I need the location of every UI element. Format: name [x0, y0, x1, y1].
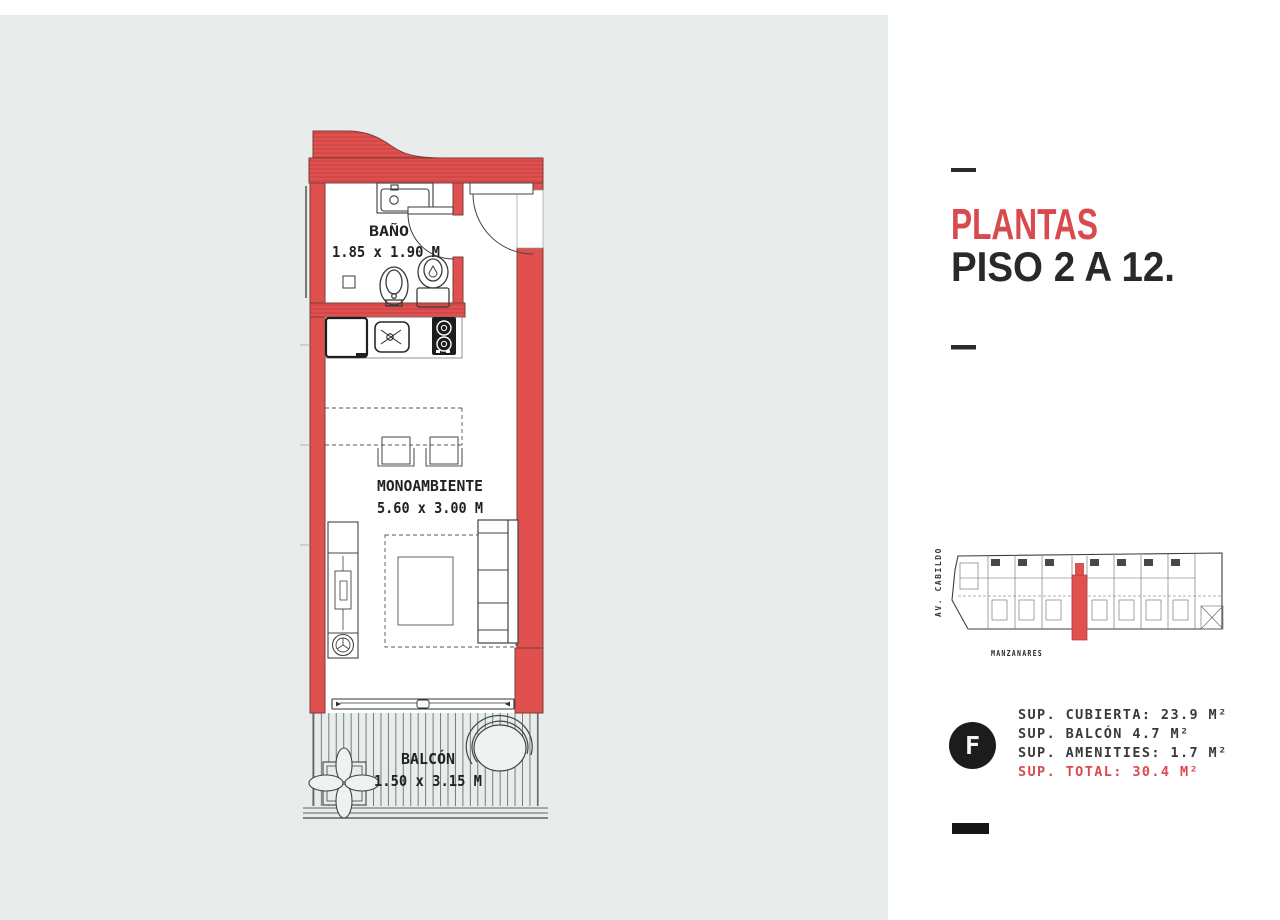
sheet-title: PLANTAS [951, 200, 1098, 249]
area-line-amenities: SUP. AMENITIES: 1.7 M² [1018, 744, 1248, 763]
bathroom-label: BAÑO [369, 223, 409, 240]
title-dash-bottom [951, 345, 976, 350]
wall-bottom-right-block [515, 648, 543, 713]
key-plan-svg: AV. CABILDO MANZANARES [925, 540, 1260, 670]
footer-bar [952, 823, 989, 834]
fridge-icon [326, 318, 367, 358]
balcony-area: BALCÓN 1.50 x 3.15 M [303, 713, 548, 818]
area-line-total: SUP. TOTAL: 30.4 M² [1018, 763, 1248, 782]
key-plan-highlight-unit [1072, 563, 1087, 640]
wall-bath-divider-top [453, 183, 463, 215]
entry-door-opening [517, 190, 543, 248]
area-line-balcon: SUP. BALCÓN 4.7 M² [1018, 725, 1248, 744]
bathroom-dims: 1.85 x 1.90 M [332, 243, 440, 261]
area-line-cubierta: SUP. CUBIERTA: 23.9 M² [1018, 706, 1248, 725]
wall-bath-bottom [310, 303, 465, 317]
stove-icon [432, 317, 456, 355]
wall-top-curved [313, 131, 444, 158]
key-plan-cores [991, 559, 1180, 566]
street-left-label: AV. CABILDO [934, 547, 943, 617]
wall-left [310, 183, 325, 713]
title-dash-top [951, 168, 976, 172]
wall-bath-divider-bottom [453, 257, 463, 305]
unit-letter-badge: F [949, 722, 996, 769]
sofa-icon [478, 520, 518, 643]
area-summary: SUP. CUBIERTA: 23.9 M² SUP. BALCÓN 4.7 M… [1018, 706, 1248, 782]
title-block: PLANTAS PISO 2 A 12. [930, 150, 1230, 370]
plan-sheet: BALCÓN 1.50 x 3.15 M [0, 0, 1280, 920]
fan-icon [333, 635, 354, 656]
balcony-label: BALCÓN [401, 749, 455, 768]
sheet-subtitle: PISO 2 A 12. [951, 243, 1175, 290]
wardrobe-icon [328, 522, 358, 658]
exterior-marks [300, 186, 309, 545]
main-room-label: MONOAMBIENTE [377, 477, 483, 495]
floorplan-svg: BALCÓN 1.50 x 3.15 M [298, 118, 562, 830]
main-room-dims: 5.60 x 3.00 M [377, 499, 483, 517]
street-bottom-label: MANZANARES [991, 649, 1043, 658]
wall-top-band [309, 158, 543, 183]
wall-right [517, 248, 543, 652]
balcony-dims: 1.50 x 3.15 M [374, 772, 482, 790]
rug [398, 557, 453, 625]
